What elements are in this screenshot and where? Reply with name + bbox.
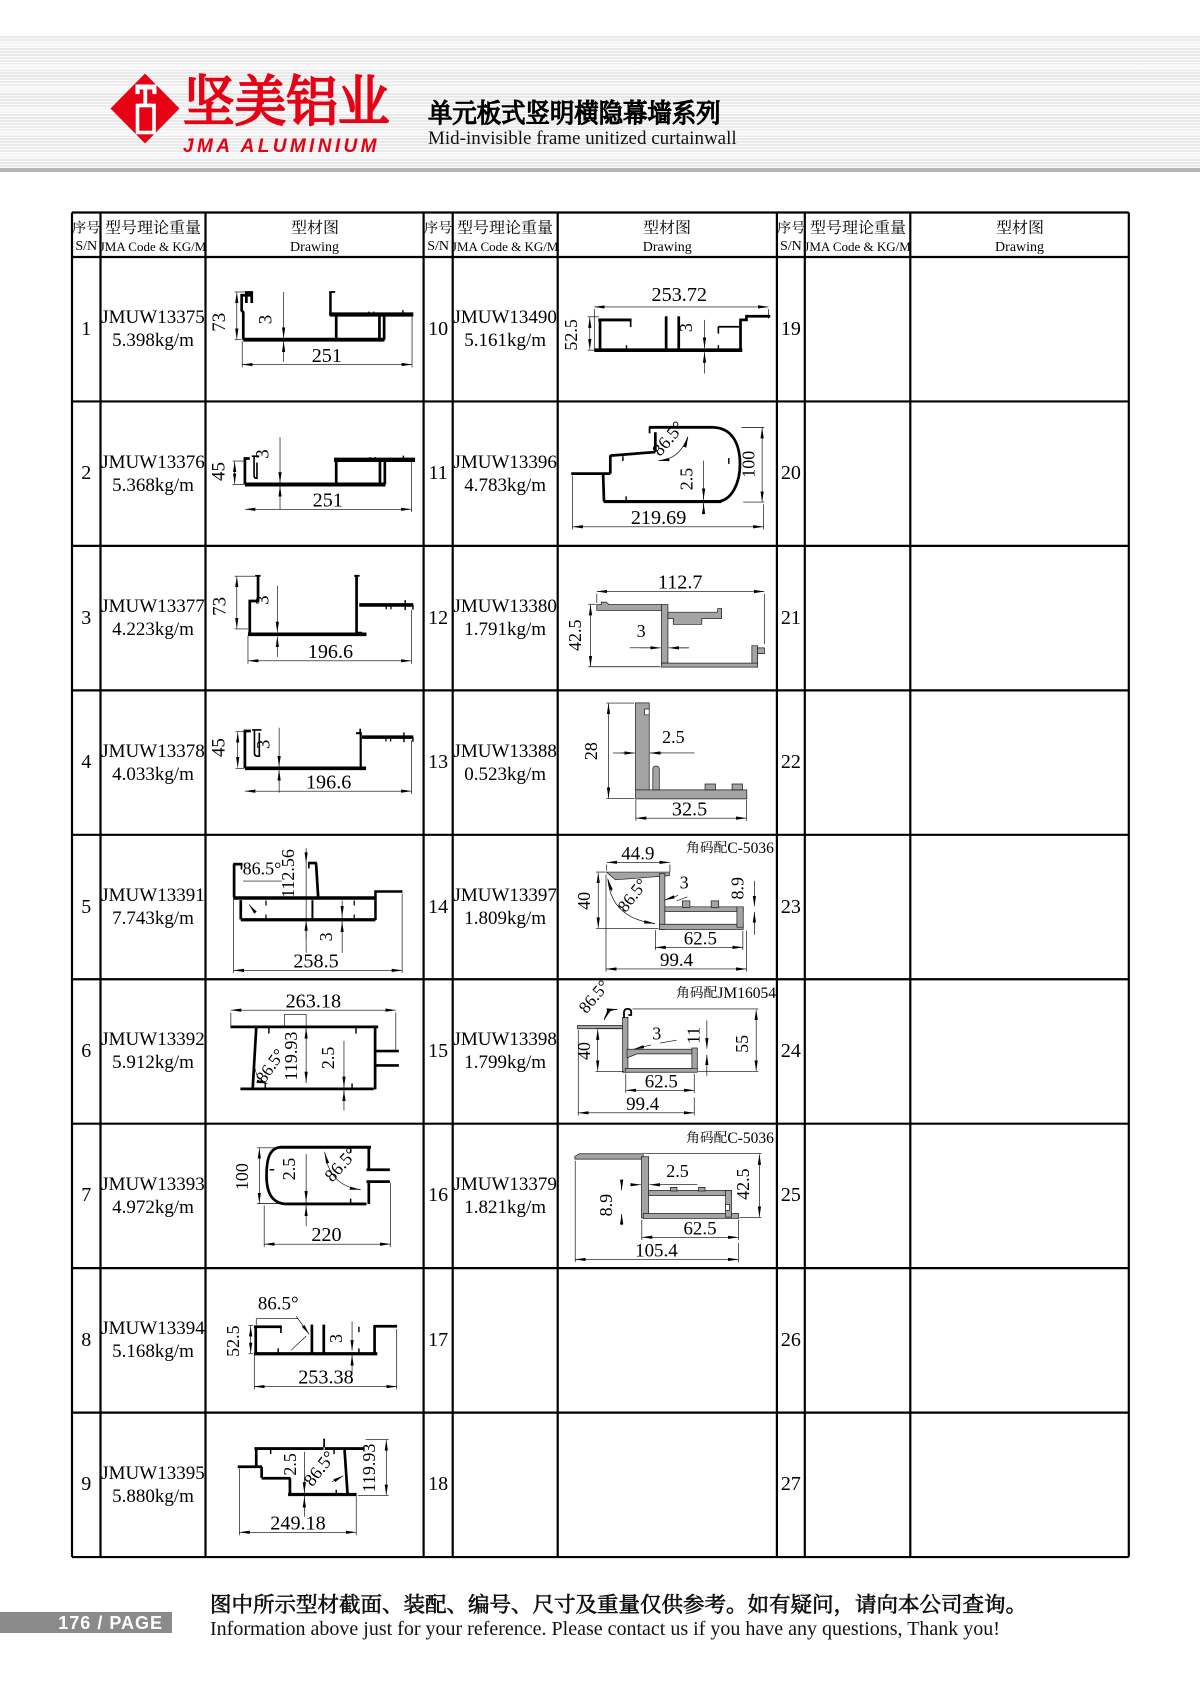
svg-text:99.4: 99.4	[626, 1094, 660, 1115]
svg-text:28: 28	[581, 743, 601, 761]
svg-text:86.5°: 86.5°	[575, 979, 613, 1017]
svg-text:11: 11	[684, 1027, 704, 1044]
svg-text:249.18: 249.18	[270, 1512, 325, 1534]
svg-text:62.5: 62.5	[684, 1218, 717, 1239]
svg-text:219.69: 219.69	[631, 507, 686, 529]
svg-text:196.6: 196.6	[308, 641, 353, 663]
svg-text:73: 73	[209, 313, 230, 332]
svg-text:99.4: 99.4	[660, 950, 694, 971]
svg-text:86.5°: 86.5°	[300, 1447, 340, 1490]
svg-text:2.5: 2.5	[280, 1453, 300, 1476]
svg-text:86.5°: 86.5°	[320, 1143, 361, 1185]
svg-text:100: 100	[739, 451, 759, 478]
svg-text:40: 40	[574, 1042, 594, 1060]
svg-text:3: 3	[637, 621, 646, 641]
svg-text:3: 3	[252, 595, 273, 604]
svg-text:258.5: 258.5	[293, 950, 338, 972]
svg-text:112.56: 112.56	[278, 849, 298, 898]
svg-text:52.5: 52.5	[223, 1326, 243, 1358]
svg-text:220: 220	[311, 1224, 341, 1246]
svg-text:251: 251	[312, 345, 342, 367]
svg-text:62.5: 62.5	[684, 928, 717, 949]
svg-text:253.38: 253.38	[298, 1367, 353, 1389]
svg-text:3: 3	[326, 1334, 346, 1343]
svg-text:73: 73	[210, 597, 231, 616]
svg-text:2.5: 2.5	[318, 1047, 338, 1070]
svg-text:45: 45	[209, 462, 230, 481]
svg-text:55: 55	[732, 1035, 752, 1053]
svg-text:3: 3	[254, 740, 275, 749]
svg-text:86.5°: 86.5°	[258, 1294, 299, 1315]
svg-text:3: 3	[652, 1024, 661, 1044]
svg-text:3: 3	[316, 932, 336, 941]
svg-text:251: 251	[313, 490, 343, 512]
svg-text:3: 3	[252, 450, 273, 459]
svg-text:86.5°: 86.5°	[614, 875, 652, 916]
svg-text:105.4: 105.4	[635, 1240, 678, 1261]
svg-text:42.5: 42.5	[733, 1168, 753, 1200]
svg-text:100: 100	[232, 1163, 252, 1190]
svg-text:2.5: 2.5	[279, 1157, 299, 1180]
svg-text:44.9: 44.9	[622, 843, 655, 864]
svg-text:112.7: 112.7	[658, 571, 703, 593]
svg-text:253.72: 253.72	[652, 284, 707, 306]
svg-text:40: 40	[574, 892, 594, 910]
svg-text:2.5: 2.5	[677, 468, 697, 491]
svg-text:8.9: 8.9	[728, 877, 748, 900]
svg-text:3: 3	[680, 872, 689, 892]
svg-text:3: 3	[255, 315, 276, 324]
svg-text:2.5: 2.5	[662, 727, 685, 747]
svg-text:119.93: 119.93	[359, 1443, 379, 1492]
svg-text:45: 45	[209, 738, 230, 757]
svg-text:3: 3	[676, 323, 696, 332]
svg-text:2.5: 2.5	[666, 1161, 689, 1181]
svg-text:42.5: 42.5	[565, 619, 585, 651]
svg-text:52.5: 52.5	[561, 319, 581, 351]
svg-text:86.5°: 86.5°	[243, 858, 282, 878]
svg-text:8.9: 8.9	[596, 1193, 616, 1216]
svg-text:62.5: 62.5	[645, 1072, 678, 1093]
svg-text:32.5: 32.5	[672, 799, 707, 821]
svg-text:263.18: 263.18	[286, 991, 341, 1013]
svg-text:196.6: 196.6	[306, 772, 351, 794]
